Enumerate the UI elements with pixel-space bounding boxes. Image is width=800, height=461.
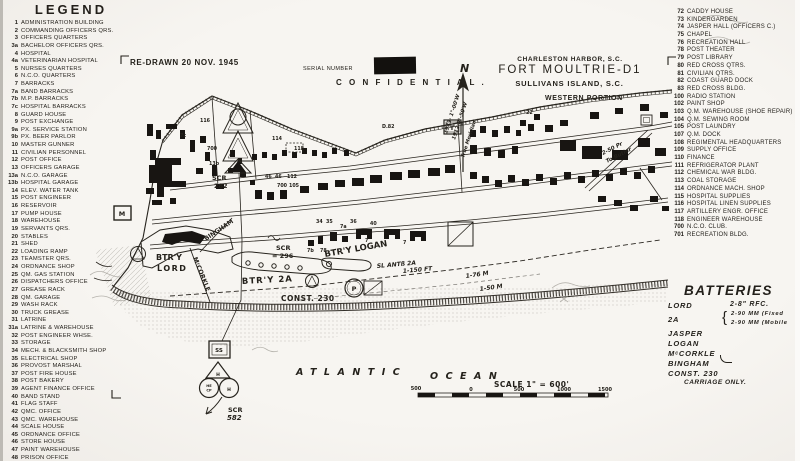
- legend-item-number: 10: [5, 142, 18, 150]
- legend-item-number: 27: [5, 287, 18, 295]
- legend-item: 18 WAREHOUSE: [5, 218, 129, 226]
- legend-item-number: 14: [5, 188, 18, 196]
- legend-item-number: 13a: [5, 173, 18, 181]
- legend-item-label: HOSPITAL GARAGE: [21, 180, 78, 188]
- legend-item: 78 POST THEATER: [669, 47, 799, 55]
- legend-item-number: 24: [5, 264, 18, 272]
- legend-item-number: 701: [669, 232, 684, 240]
- legend-item: 80 RED CROSS QTRS.: [669, 63, 799, 71]
- legend-item-label: JASPER HALL (OFFICERS C.): [687, 24, 775, 32]
- legend-left: LEGEND 1 ADMINISTRATION BUILDING 2 COMMA…: [5, 2, 129, 461]
- legend-item: 38 POST BAKERY: [5, 378, 129, 386]
- legend-item-label: N.C.O. GARAGE: [21, 173, 68, 181]
- named-road-lines: [190, 218, 232, 302]
- batteries-title: BATTERIES: [684, 283, 798, 298]
- scan-edge-left: [0, 0, 3, 461]
- legend-item-label: QMC. OFFICE: [21, 409, 61, 417]
- btry-2a-label: BTR'Y 2A: [242, 274, 293, 287]
- legend-item-label: ELEV. WATER TANK: [21, 188, 79, 196]
- legend-item: 40 BAND STAND: [5, 394, 129, 402]
- legend-item-label: HOSPITAL: [21, 51, 51, 59]
- serial-number-redaction-box: [374, 57, 416, 75]
- battery-row: MᶜCORKLE: [668, 349, 798, 359]
- legend-item: 26 DISPATCHERS OFFICE: [5, 279, 129, 287]
- legend-item-number: 30: [5, 310, 18, 318]
- legend-item-number: 9: [5, 119, 18, 127]
- legend-item-label: NURSES QUARTERS: [21, 66, 82, 74]
- legend-item-label: POST FIRE HOUSE: [21, 371, 77, 379]
- legend-item: 114 ORDNANCE MACH. SHOP: [669, 186, 799, 194]
- legend-item: 102 PAINT SHOP: [669, 101, 799, 109]
- legend-item-number: 15: [5, 195, 18, 203]
- battery-armament-fixed: 2-90 MM (Fixed: [731, 311, 784, 317]
- legend-item: 20 STABLES: [5, 234, 129, 242]
- scr-296-l2: = 296: [272, 252, 294, 260]
- dist-76m: 1-76 M: [465, 270, 489, 280]
- legend-item: 76 RECREATION HALL: [669, 40, 799, 48]
- legend-item: 74 JASPER HALL (OFFICERS C.): [669, 24, 799, 32]
- roads: [94, 97, 672, 281]
- legend-item: 9a PX. SERVICE STATION: [5, 127, 129, 135]
- legend-item-number: 41: [5, 401, 18, 409]
- legend-item: 700 N.C.O. CLUB.: [669, 224, 799, 232]
- legend-item: 110 FINANCE: [669, 155, 799, 163]
- building-number: 35: [326, 219, 333, 225]
- legend-item-label: FLAG STAFF: [21, 401, 58, 409]
- legend-item-label: Q.M. SEWING ROOM: [687, 117, 750, 125]
- legend-item: 17 PUMP HOUSE: [5, 211, 129, 219]
- legend-item-label: CHAPEL: [687, 32, 712, 40]
- building-number: 7: [403, 240, 406, 246]
- legend-item-number: 117: [669, 209, 684, 217]
- legend-item-label: RED CROSS QTRS.: [687, 63, 746, 71]
- legend-item: 14 ELEV. WATER TANK: [5, 188, 129, 196]
- legend-item-number: 47: [5, 447, 18, 455]
- legend-item-number: 79: [669, 55, 684, 63]
- battery-row: LOGAN: [668, 339, 798, 349]
- legend-item: 33 STORAGE: [5, 340, 129, 348]
- legend-item-number: 76: [669, 40, 684, 48]
- batteries-block: BATTERIES LORD 2-8" RFC. { 2A 2-90 MM (F…: [668, 283, 798, 386]
- building-number: 22: [526, 110, 533, 116]
- building-number: 7b: [307, 248, 314, 254]
- legend-item: 6 N.C.O. QUARTERS: [5, 73, 129, 81]
- legend-item: 4 HOSPITAL: [5, 51, 129, 59]
- legend-item: 27 GREASE RACK: [5, 287, 129, 295]
- legend-item-number: 23: [5, 256, 18, 264]
- legend-item-label: MECH. & BLACKSMITH SHOP: [21, 348, 106, 356]
- legend-item-label: RADIO STATION: [687, 94, 735, 102]
- battery-armament-mobile: 2-90 MM (Mobile: [731, 320, 788, 326]
- legend-item: 4a VETERINARIAN HOSPITAL: [5, 58, 129, 66]
- legend-item: 15 POST ENGINEER: [5, 195, 129, 203]
- legend-item-label: POST LAUNDRY: [687, 124, 736, 132]
- legend-item-label: QMC. WAREHOUSE: [21, 417, 78, 425]
- building-number: 7a: [340, 224, 347, 230]
- legend-item-number: 112: [669, 170, 684, 178]
- legend-item-number: 110: [669, 155, 684, 163]
- legend-item-number: 29: [5, 302, 18, 310]
- redrawn-note: RE-DRAWN 20 NOV. 1945: [130, 58, 239, 67]
- symbol-h2: H: [227, 387, 231, 393]
- legend-item: 43 QMC. WAREHOUSE: [5, 417, 129, 425]
- building-number: 46: [275, 174, 282, 180]
- map-title-harbor: CHARLESTON HARBOR, S.C.: [495, 56, 645, 63]
- legend-item-number: 72: [669, 9, 684, 17]
- legend-item: 34 MECH. & BLACKSMITH SHOP: [5, 348, 129, 356]
- legend-item-number: 46: [5, 439, 18, 447]
- legend-item-number: 21: [5, 241, 18, 249]
- legend-item: 24 ORDNANCE SHOP: [5, 264, 129, 272]
- legend-item: 32 POST ENGINEER WHSE.: [5, 333, 129, 341]
- legend-item-label: WAREHOUSE: [21, 218, 61, 226]
- battery-2a: [232, 236, 331, 275]
- legend-item: 117 ARTILLERY ENGR. OFFICE: [669, 209, 799, 217]
- legend-item-number: 31: [5, 317, 18, 325]
- legend-item-number: 32: [5, 333, 18, 341]
- battery-logan: [306, 258, 372, 288]
- legend-item-label: PRISON OFFICE: [21, 455, 69, 461]
- legend-item-label: RECREATION BLDG.: [687, 232, 749, 240]
- scale-tick: 1500: [598, 387, 612, 393]
- legend-item-number: 13: [5, 165, 18, 173]
- legend-item: 100 RADIO STATION: [669, 94, 799, 102]
- symbol-t: T: [450, 124, 455, 132]
- legend-item: 7 BARRACKS: [5, 81, 129, 89]
- road-bingham: BINGHAM: [203, 218, 235, 242]
- legend-item-label: AGENT FINANCE OFFICE: [21, 386, 95, 394]
- legend-item-number: 8: [5, 112, 18, 120]
- legend-item-number: 11: [5, 150, 18, 158]
- legend-item-label: HOSPITAL SUPPLIES: [687, 194, 750, 202]
- legend-item-label: POST LIBRARY: [687, 55, 733, 63]
- legend-item: 29 WASH RACK: [5, 302, 129, 310]
- battery-row-2a: 2A 2-90 MM (Fixed 2-90 MM (Mobile: [668, 311, 798, 329]
- legend-item-number: 103: [669, 109, 684, 117]
- symbol-p: P: [352, 285, 357, 293]
- scale-tick: 0: [469, 387, 473, 393]
- legend-item-label: POST BAKERY: [21, 378, 64, 386]
- legend-item-label: POST THEATER: [687, 47, 735, 55]
- dist-50m: 1-50 M: [479, 283, 503, 293]
- scr-282-l1: SCR: [212, 174, 226, 182]
- legend-item-label: ORDNANCE OFFICE: [21, 432, 80, 440]
- legend-item: 12 POST OFFICE: [5, 157, 129, 165]
- beach-sand: [112, 284, 668, 346]
- btry-lord-l1: BTR'Y: [156, 253, 182, 262]
- legend-item-number: 16: [5, 203, 18, 211]
- battery-name: LORD: [668, 301, 692, 310]
- legend-item-number: 7c: [5, 104, 18, 112]
- legend-item-number: 13b: [5, 180, 18, 188]
- legend-item-number: 74: [669, 24, 684, 32]
- legend-item-label: LATRINE: [21, 317, 46, 325]
- legend-item: 10 MASTER GUNNER: [5, 142, 129, 150]
- legend-item-label: QM. GAS STATION: [21, 272, 75, 280]
- legend-item-label: N.C.O. QUARTERS: [21, 73, 75, 81]
- legend-item: 22 LOADING RAMP: [5, 249, 129, 257]
- legend-item-number: 1: [5, 20, 18, 28]
- legend-item-label: SHED: [21, 241, 38, 249]
- seawall: [112, 280, 668, 311]
- battery-row: JASPER: [668, 329, 798, 339]
- legend-item: 47 PAINT WAREHOUSE: [5, 447, 129, 455]
- legend-item-label: BARRACKS: [21, 81, 55, 89]
- btry-lord-l2: LORD: [157, 264, 187, 273]
- legend-item: 72 CADDY HOUSE: [669, 9, 799, 17]
- map-title-fort: FORT MOULTRIE-D1: [490, 64, 650, 76]
- carriage-note: CARRIAGE ONLY.: [684, 379, 798, 386]
- north-arrow: [458, 74, 468, 172]
- scanned-map-page: N1943· 1°-00'W1912 0°-50'WTrue Meridian.…: [0, 0, 800, 461]
- legend-item-label: SUPPLY OFFICE: [687, 147, 736, 155]
- legend-item-label: LOADING RAMP: [21, 249, 68, 257]
- legend-item: 16 RESERVOIR: [5, 203, 129, 211]
- legend-item-number: 3a: [5, 43, 18, 51]
- legend-item: 28 QM. GARAGE: [5, 295, 129, 303]
- declination-1912: 1912 0°-50'W: [451, 101, 469, 140]
- butler-l1: 2-50 Pr: [601, 141, 624, 157]
- legend-item-label: ARTILLERY ENGR. OFFICE: [687, 209, 768, 217]
- battery-row: CONST. 230: [668, 369, 798, 379]
- legend-item-label: BACHELOR OFFICERS QRS.: [21, 43, 104, 51]
- legend-item: 30 TRUCK GREASE: [5, 310, 129, 318]
- building-number: 700: [207, 146, 218, 152]
- legend-item: 109 SUPPLY OFFICE: [669, 147, 799, 155]
- legend-item: 7c HOSPITAL BARRACKS: [5, 104, 129, 112]
- legend-item-number: 118: [669, 217, 684, 225]
- legend-item-number: 25: [5, 272, 18, 280]
- legend-item-number: 43: [5, 417, 18, 425]
- legend-item-number: 42: [5, 409, 18, 417]
- legend-item-label: PAINT WAREHOUSE: [21, 447, 80, 455]
- legend-item: 13a N.C.O. GARAGE: [5, 173, 129, 181]
- legend-item-label: REGIMENTAL HEADQUARTERS: [687, 140, 782, 148]
- building-number: 112: [287, 174, 297, 180]
- scr-582-l2: 582: [227, 414, 242, 422]
- building-number: 40: [370, 221, 377, 227]
- legend-item-number: 115: [669, 194, 684, 202]
- legend-item-label: RECREATION HALL: [687, 40, 746, 48]
- legend-item-number: 7b: [5, 96, 18, 104]
- symbol-he: HE: [206, 384, 212, 388]
- outline-buildings: [286, 115, 652, 295]
- building-number: 7c: [180, 133, 186, 139]
- building-number: 34: [316, 219, 323, 225]
- legend-item: 112 CHEMICAL WAR BLDG.: [669, 170, 799, 178]
- map-title-island: SULLIVANS ISLAND, S.C.: [492, 79, 647, 88]
- legend-item-label: BAND BARRACKS: [21, 89, 73, 97]
- building-number: 700: [277, 183, 288, 189]
- legend-item: 3a BACHELOR OFFICERS QRS.: [5, 43, 129, 51]
- legend-item-number: 9a: [5, 127, 18, 135]
- legend-item-label: ADMINISTRATION BUILDING: [21, 20, 104, 28]
- legend-item-label: POST EXCHANGE: [21, 119, 73, 127]
- serial-number-label: SERIAL NUMBER: [303, 66, 353, 72]
- map-labels: N1943· 1°-00'W1912 0°-50'WTrue Meridian.…: [119, 62, 633, 422]
- legend-item: 79 POST LIBRARY: [669, 55, 799, 63]
- legend-item: 46 STORE HOUSE: [5, 439, 129, 447]
- legend-item: 19 SERVANTS QRS.: [5, 226, 129, 234]
- building-number: D.82: [382, 124, 394, 130]
- legend-item-label: BAND STAND: [21, 394, 60, 402]
- legend-item-number: 5: [5, 66, 18, 74]
- legend-item-label: SERVANTS QRS.: [21, 226, 70, 234]
- scr-282-l2: 282: [214, 182, 228, 190]
- legend-item-label: STABLES: [21, 234, 48, 242]
- scr-582-l1: SCR: [228, 406, 242, 414]
- true-meridian: True Meridian.: [460, 118, 478, 159]
- legend-item-number: 4: [5, 51, 18, 59]
- scr-296-l1: SCR: [276, 244, 290, 252]
- legend-item: 73 KINDERGARDEN: [669, 17, 799, 25]
- legend-item-label: PX. BEER PARLOR: [21, 134, 76, 142]
- legend-item-label: GUARD HOUSE: [21, 112, 66, 120]
- legend-item-label: CHEMICAL WAR BLDG.: [687, 170, 757, 178]
- legend-item: 11 CIVILIAN PERSONNEL: [5, 150, 129, 158]
- legend-item: 118 ENGINEER WAREHOUSE: [669, 217, 799, 225]
- legend-item-number: 82: [669, 78, 684, 86]
- legend-item-number: 37: [5, 371, 18, 379]
- legend-item: 44 SCALE HOUSE: [5, 424, 129, 432]
- battery-lord: [131, 226, 234, 268]
- legend-item-number: 17: [5, 211, 18, 219]
- legend-item-label: MASTER GUNNER: [21, 142, 75, 150]
- legend-item-label: ENGINEER WAREHOUSE: [687, 217, 763, 225]
- legend-item-label: ELECTRICAL SHOP: [21, 356, 78, 364]
- legend-item: 36 PROVOST MARSHAL: [5, 363, 129, 371]
- legend-item-label: GREASE RACK: [21, 287, 65, 295]
- legend-title: LEGEND: [13, 2, 129, 17]
- building-number: 116: [200, 118, 211, 124]
- legend-item: 81 CIVILIAN QTRS.: [669, 71, 799, 79]
- legend-item-number: 9b: [5, 134, 18, 142]
- legend-item-number: 700: [669, 224, 684, 232]
- legend-item-label: TRUCK GREASE: [21, 310, 69, 318]
- legend-item-number: 45: [5, 432, 18, 440]
- building-number: 105: [289, 183, 299, 189]
- legend-item: 103 Q.M. WAREHOUSE (SHOE REPAIR): [669, 109, 799, 117]
- corner-brackets: [112, 56, 676, 398]
- scale-label: SCALE 1" = 600': [494, 380, 569, 389]
- legend-item: 9 POST EXCHANGE: [5, 119, 129, 127]
- legend-item-number: 83: [669, 86, 684, 94]
- legend-item-label: CIVILIAN PERSONNEL: [21, 150, 86, 158]
- legend-item: 7a BAND BARRACKS: [5, 89, 129, 97]
- legend-item: 7b M.P. BARRACKS: [5, 96, 129, 104]
- radio-tower-triangles: [222, 103, 253, 341]
- legend-item-label: OFFICERS QUARTERS: [21, 35, 87, 43]
- legend-item: 31 LATRINE: [5, 317, 129, 325]
- legend-item-number: 109: [669, 147, 684, 155]
- building-number: 36: [350, 219, 357, 225]
- legend-item-number: 12: [5, 157, 18, 165]
- building-number: 46: [265, 174, 272, 180]
- symbol-cp: CP: [206, 389, 212, 393]
- legend-item-number: 3: [5, 35, 18, 43]
- legend-item-number: 6: [5, 73, 18, 81]
- scale-tick: 500: [411, 386, 422, 392]
- battery-row: BINGHAM: [668, 359, 798, 369]
- fort-boundary: [113, 90, 672, 287]
- legend-item: 107 Q.M. DOCK: [669, 132, 799, 140]
- legend-item-label: CADDY HOUSE: [687, 9, 733, 17]
- map-title-portion: WESTERN PORTION: [545, 95, 623, 102]
- buildings: [146, 104, 669, 246]
- battery-row-lord: LORD 2-8" RFC.: [668, 301, 798, 311]
- legend-item-number: 114: [669, 186, 684, 194]
- legend-item-label: POST OFFICE: [21, 157, 62, 165]
- map-symbols: [114, 120, 461, 414]
- legend-item: 41 FLAG STAFF: [5, 401, 129, 409]
- legend-item: 2 COMMANDING OFFICERS QRS.: [5, 28, 129, 36]
- dashed-lines: [170, 240, 660, 300]
- legend-item: 23 TEAMSTER QRS.: [5, 256, 129, 264]
- legend-item-number: 81: [669, 71, 684, 79]
- legend-item-label: N.C.O. CLUB.: [687, 224, 727, 232]
- legend-item-label: COMMANDING OFFICERS QRS.: [21, 28, 113, 36]
- legend-item: 13 OFFICERS GARAGE: [5, 165, 129, 173]
- scale-bar: [418, 393, 608, 397]
- legend-item-number: 7a: [5, 89, 18, 97]
- legend-item-label: RESERVOIR: [21, 203, 57, 211]
- legend-item-number: 36: [5, 363, 18, 371]
- legend-item-number: 38: [5, 378, 18, 386]
- legend-item: 5 NURSES QUARTERS: [5, 66, 129, 74]
- legend-item: 39 AGENT FINANCE OFFICE: [5, 386, 129, 394]
- scale-tick: 500: [514, 387, 525, 393]
- legend-item-number: 111: [669, 163, 684, 171]
- legend-item: 108 REGIMENTAL HEADQUARTERS: [669, 140, 799, 148]
- legend-item-label: POST ENGINEER WHSE.: [21, 333, 93, 341]
- legend-item: 1 ADMINISTRATION BUILDING: [5, 20, 129, 28]
- legend-item: 104 Q.M. SEWING ROOM: [669, 117, 799, 125]
- legend-item-label: VETERINARIAN HOSPITAL: [21, 58, 98, 66]
- legend-item-number: 104: [669, 117, 684, 125]
- legend-item-label: QM. GARAGE: [21, 295, 60, 303]
- legend-item-number: 108: [669, 140, 684, 148]
- legend-item-number: 34: [5, 348, 18, 356]
- legend-item: 45 ORDNANCE OFFICE: [5, 432, 129, 440]
- legend-item-number: 28: [5, 295, 18, 303]
- legend-item-number: 113: [669, 178, 684, 186]
- legend-item-number: 107: [669, 132, 684, 140]
- legend-item-number: 4a: [5, 58, 18, 66]
- legend-item: 37 POST FIRE HOUSE: [5, 371, 129, 379]
- symbol-ss: SS: [215, 348, 223, 354]
- legend-item-label: STORE HOUSE: [21, 439, 65, 447]
- legend-item-number: 40: [5, 394, 18, 402]
- legend-item-number: 78: [669, 47, 684, 55]
- legend-item: 115 HOSPITAL SUPPLIES: [669, 194, 799, 202]
- legend-item-label: PUMP HOUSE: [21, 211, 62, 219]
- butler-l2: To Butler: [605, 147, 633, 165]
- legend-item-number: 39: [5, 386, 18, 394]
- legend-item-label: FINANCE: [687, 155, 715, 163]
- legend-item-number: 116: [669, 201, 684, 209]
- legend-item: 105 POST LAUNDRY: [669, 124, 799, 132]
- legend-item: 13b HOSPITAL GARAGE: [5, 180, 129, 188]
- legend-item: 9b PX. BEER PARLOR: [5, 134, 129, 142]
- building-number: 118: [294, 146, 305, 152]
- dist-150ft: 1-150 FT: [403, 265, 434, 275]
- btry-logan-label: BTR'Y LOGAN: [324, 239, 388, 260]
- symbol-h-tri: H: [216, 372, 220, 378]
- confidential-stamp: C O N F I D E N T I A L .: [336, 78, 486, 87]
- legend-right: 72 CADDY HOUSE 73 KINDERGARDEN 74 JASPER…: [669, 9, 799, 240]
- legend-item-label: STORAGE: [21, 340, 51, 348]
- legend-item-number: 18: [5, 218, 18, 226]
